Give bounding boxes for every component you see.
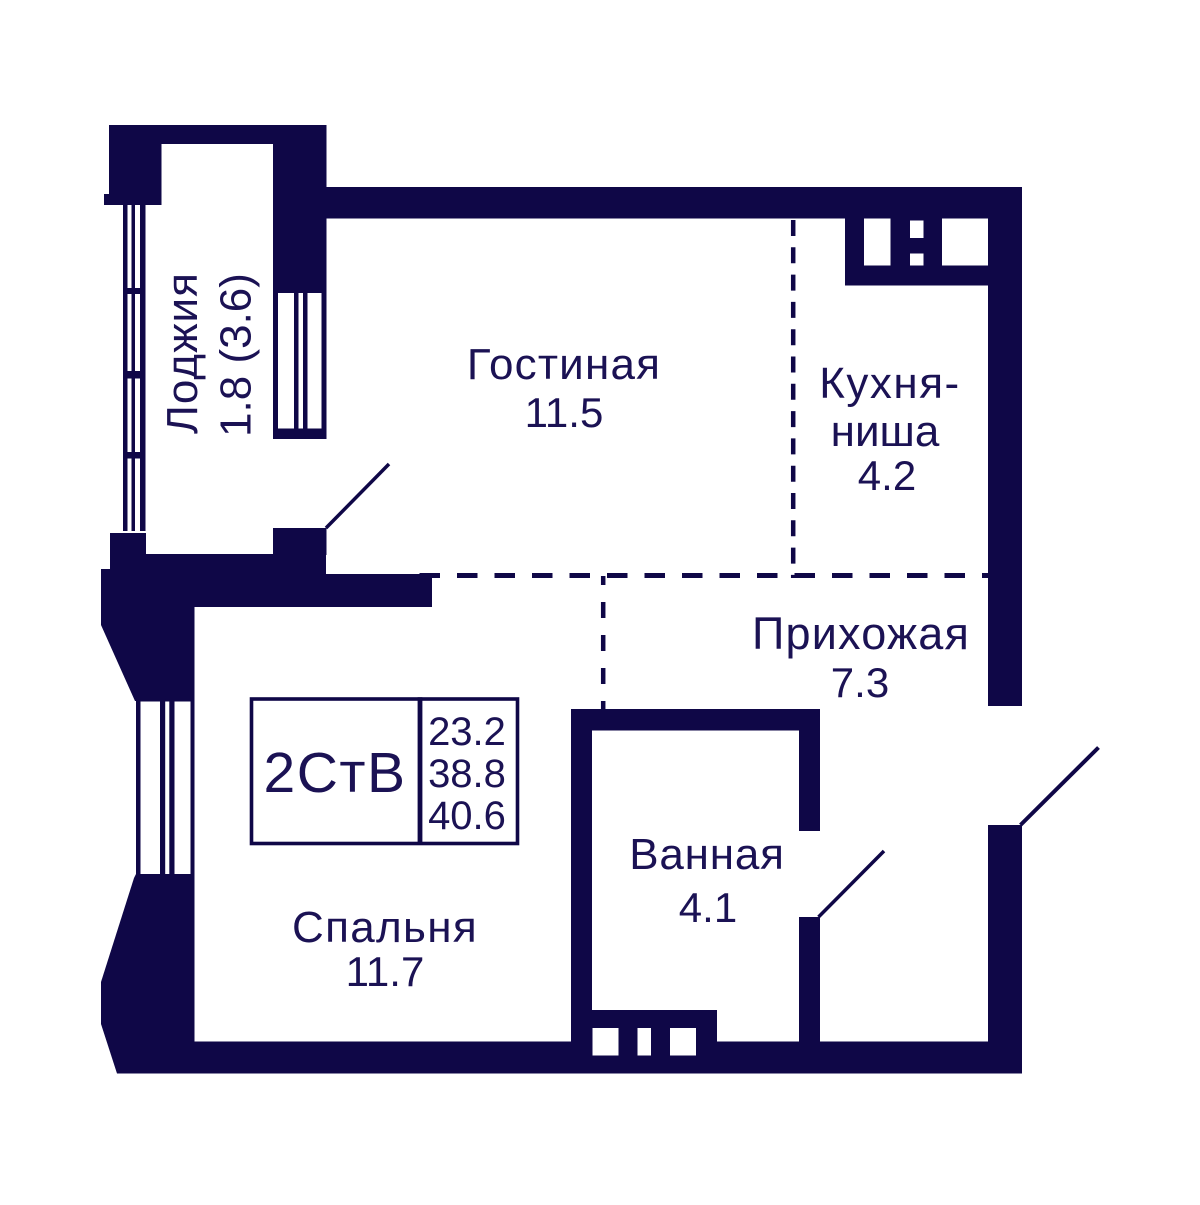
svg-text:38.8: 38.8 [428, 752, 506, 796]
svg-text:11.7: 11.7 [346, 948, 425, 995]
svg-text:Лоджия: Лоджия [158, 272, 207, 434]
svg-text:40.6: 40.6 [428, 794, 506, 838]
svg-text:23.2: 23.2 [428, 710, 506, 754]
svg-text:4.1: 4.1 [679, 884, 737, 931]
svg-text:Прихожая: Прихожая [752, 608, 970, 659]
svg-text:1.8 (3.6): 1.8 (3.6) [212, 273, 261, 437]
svg-text:4.2: 4.2 [858, 452, 916, 499]
svg-text:ниша: ниша [831, 407, 940, 456]
svg-text:7.3: 7.3 [831, 659, 889, 706]
svg-text:11.5: 11.5 [525, 389, 604, 436]
svg-text:Гостиная: Гостиная [467, 340, 661, 389]
svg-text:2СтВ: 2СтВ [264, 741, 407, 805]
svg-text:Спальня: Спальня [292, 903, 478, 952]
svg-text:Ванная: Ванная [629, 830, 785, 879]
svg-text:Кухня-: Кухня- [819, 359, 960, 408]
